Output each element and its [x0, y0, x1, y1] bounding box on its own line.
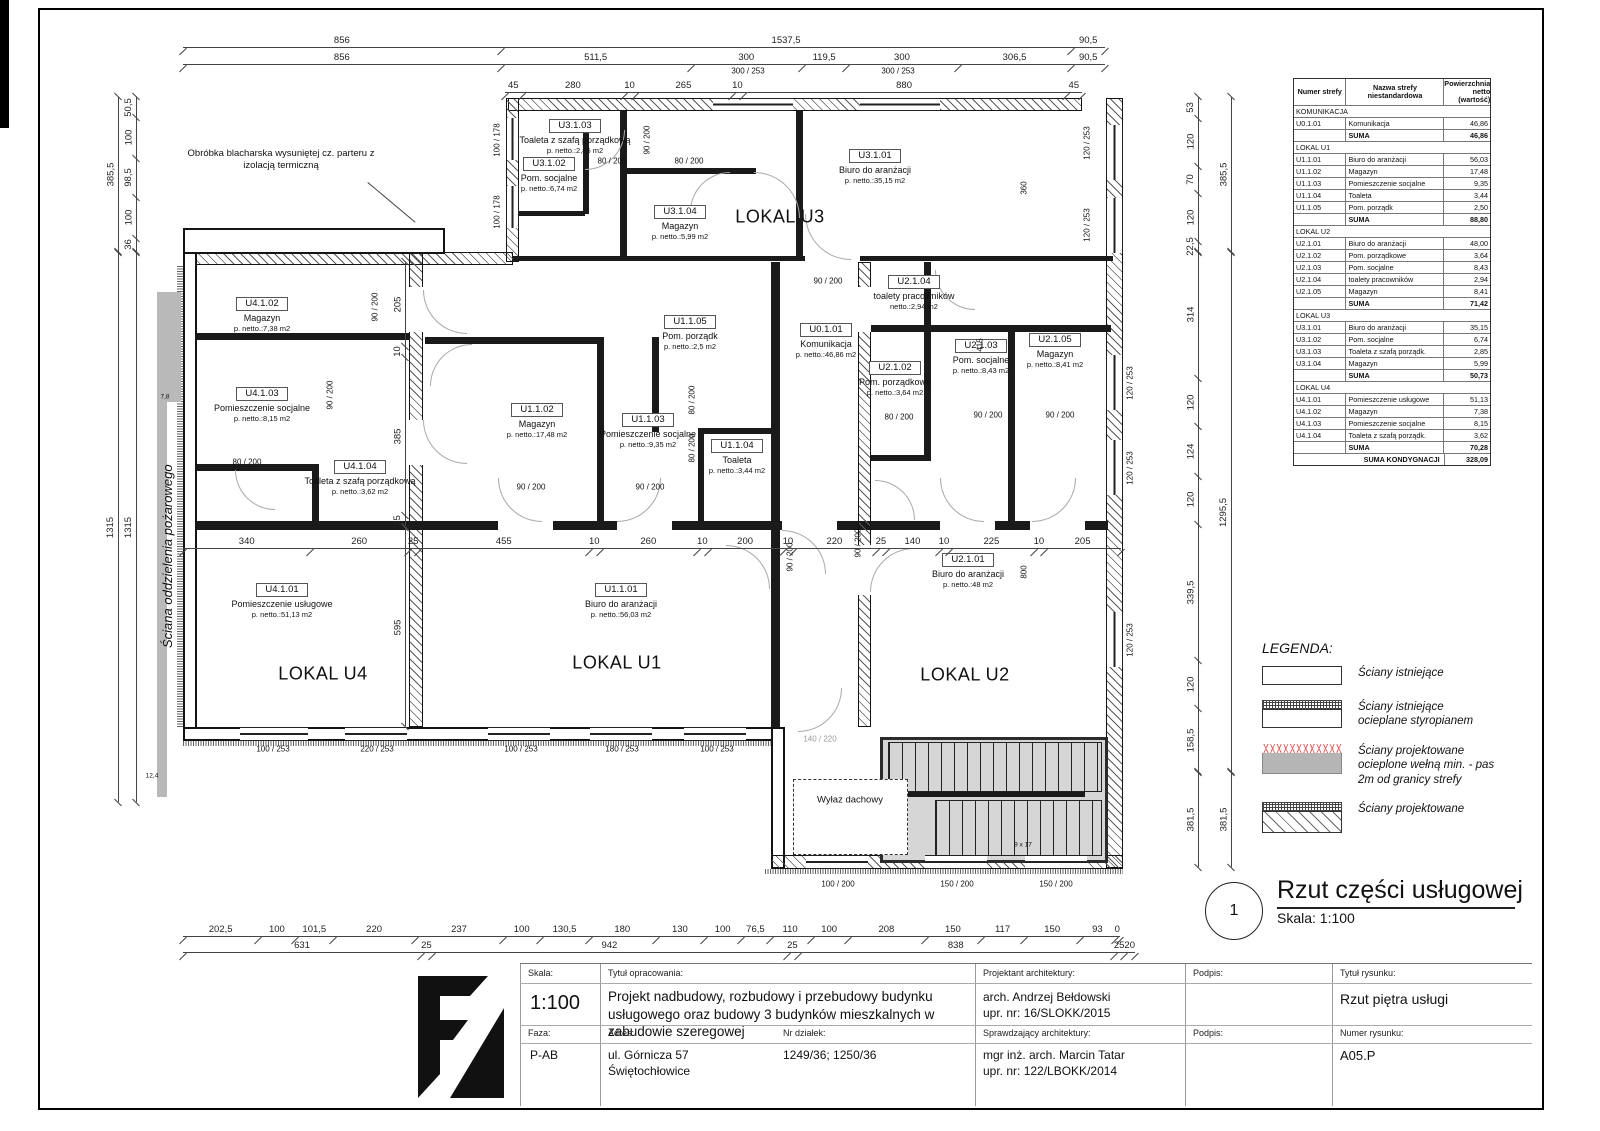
dim-segment: 120 — [1183, 476, 1198, 524]
table-cell: 50,73 — [1444, 370, 1490, 381]
table-row: U2.1.03Pom. socjalne8,43 — [1294, 261, 1490, 273]
dim-segment: 100 — [121, 117, 136, 157]
door-arc — [798, 688, 842, 732]
dim-segment: 140 — [886, 534, 938, 548]
lokal-title: LOKAL U3 — [735, 207, 824, 228]
dim-segment: 856 — [183, 50, 501, 64]
room-label-U3.1.01: U3.1.01Biuro do aranżacjip. netto.:35,15… — [795, 144, 955, 186]
opening-label: 360 — [1020, 181, 1029, 194]
total-value: 328,09 — [1445, 454, 1490, 465]
window — [925, 855, 987, 869]
opening-label: 180 / 253 — [605, 745, 638, 754]
value-tytul-rysunku: Rzut piętra usługi — [1340, 990, 1448, 1008]
drawing-sheet: { "drawing": {"sheet_no":"1","title":"Rz… — [0, 0, 1600, 1131]
dimension-chain: 314120124120339,5120158,5 — [1183, 252, 1199, 772]
value-faza: P-AB — [530, 1048, 558, 1064]
table-row: U3.1.01Biuro do aranżacji35,15 — [1294, 321, 1490, 333]
table-cell: U3.1.03 — [1294, 346, 1346, 357]
table-sum-row: SUMA50,73 — [1294, 369, 1490, 381]
table-cell — [1294, 370, 1346, 381]
value-nr-dzialek: 1249/36; 1250/36 — [783, 1048, 876, 1064]
window — [684, 727, 746, 741]
table-sum-row: SUMA70,28 — [1294, 441, 1490, 453]
dimension-chain: 385,5 — [103, 97, 119, 252]
door-arc — [875, 480, 915, 520]
table-cell: 2,85 — [1444, 346, 1490, 357]
table-cell: U1.1.05 — [1294, 202, 1346, 213]
dim-segment: 265 — [635, 78, 732, 92]
dim-segment: 237 — [415, 922, 503, 936]
table-cell: U2.1.01 — [1294, 238, 1346, 249]
wall-hatch — [508, 98, 1082, 111]
title-block: Skala: Tytuł opracowania: Projektant arc… — [520, 963, 1532, 1106]
dim-segment: 838 — [798, 938, 1114, 952]
section-label: LOKAL U1 — [1294, 142, 1332, 153]
dim-segment: 10 — [939, 534, 950, 548]
table-cell — [1294, 442, 1346, 453]
table-cell: 8,41 — [1444, 286, 1490, 297]
opening-label: 90 / 200 — [636, 483, 665, 492]
opening-label: 300 / 253 — [731, 67, 764, 76]
door-arc — [235, 470, 275, 510]
dim-segment: 90,5 — [1071, 50, 1105, 64]
door-arc — [423, 290, 467, 334]
label-nr-dzialek: Nr działek: — [783, 1028, 826, 1038]
room-label-U3.1.03: U3.1.03Toaleta z szafą porządkowąp. nett… — [495, 114, 655, 156]
opening-label: 90 / 200 — [1046, 411, 1075, 420]
opening-label: 90 / 200 — [814, 277, 843, 286]
dimension-chain: 45280102651088045 — [505, 78, 1082, 93]
dim-segment: 45 — [505, 78, 522, 92]
table-row: U0.1.01Komunikacja46,86 — [1294, 117, 1490, 129]
room-area: p. netto.:3,62 m2 — [280, 487, 440, 497]
dim-segment: 150 — [925, 922, 981, 936]
dimension-chain: 8561537,590,5 — [183, 33, 1105, 48]
table-cell: 71,42 — [1444, 298, 1490, 309]
dim-segment: 385 — [390, 357, 405, 515]
fire-separation-wall-note: Ściana oddzielenia pożarowego — [160, 464, 175, 648]
opening-label: 100 / 200 — [821, 880, 854, 889]
room-id-box: U3.1.03 — [549, 119, 600, 133]
dim-segment: 117 — [981, 922, 1025, 936]
table-cell: U4.1.01 — [1294, 394, 1346, 405]
table-row: U1.1.04Toaleta3,44 — [1294, 189, 1490, 201]
room-name: Toaleta — [657, 455, 817, 467]
table-cell: U3.1.02 — [1294, 334, 1346, 345]
wall-gap — [782, 521, 837, 530]
dim-segment: 10 — [390, 346, 405, 357]
room-area: p. netto.:8,15 m2 — [182, 414, 342, 424]
table-row: U4.1.02Magazyn7,38 — [1294, 405, 1490, 417]
room-id-box: U1.1.02 — [511, 403, 562, 417]
opening-label: 140 / 220 — [803, 735, 836, 744]
table-row: U1.1.05Pom. porządk2,50 — [1294, 201, 1490, 213]
dim-segment: 455 — [418, 534, 589, 548]
room-name: Magazyn — [975, 349, 1135, 361]
dim-segment: 101,5 — [295, 922, 333, 936]
dim-segment: 120 — [1183, 378, 1198, 426]
dim-segment: 340 — [183, 534, 310, 548]
dim-segment: 10 — [783, 534, 794, 548]
room-name: Pom. porządkowe — [815, 377, 975, 389]
dim-segment: 10 — [697, 534, 708, 548]
table-cell: 3,64 — [1444, 250, 1490, 261]
table-cell: 8,43 — [1444, 262, 1490, 273]
dim-segment: 10 — [1034, 534, 1045, 548]
room-label-U4.1.03: U4.1.03Pomieszczenie socjalnep. netto.:8… — [182, 382, 342, 424]
opening-label: 7,8 — [160, 394, 169, 401]
opening-label: 100 / 178 — [493, 195, 502, 228]
dim-segment: 25 — [421, 938, 432, 952]
dim-segment: 25 — [876, 534, 887, 548]
table-cell: 3,44 — [1444, 190, 1490, 201]
door-arc — [1032, 478, 1076, 522]
legend-label: Ściany istniejące — [1358, 666, 1444, 680]
table-cell: U2.1.03 — [1294, 262, 1346, 273]
table-row: U2.1.02Pom. porządkowe3,64 — [1294, 249, 1490, 261]
room-area: p. netto.:3,64 m2 — [815, 388, 975, 398]
opening-label: 80 / 200 — [598, 157, 627, 166]
wall-solid — [425, 337, 603, 344]
table-row: U2.1.04toalety pracowników2,94 — [1294, 273, 1490, 285]
table-row: U3.1.02Pom. socjalne6,74 — [1294, 333, 1490, 345]
legend: LEGENDA: Ściany istniejąceŚciany istniej… — [1262, 640, 1524, 848]
room-name: Toaleta z szafą porządkową — [495, 135, 655, 147]
dim-segment: 76,5 — [741, 922, 769, 936]
section-label: LOKAL U3 — [1294, 310, 1332, 321]
opening-label: 12,4 — [146, 773, 159, 780]
room-id-box: U0.1.01 — [800, 323, 851, 337]
table-cell: 6,74 — [1444, 334, 1490, 345]
table-cell: Biuro do aranżacji — [1346, 154, 1444, 165]
opening-label: 100 / 253 — [256, 745, 289, 754]
dim-segment: 130 — [656, 922, 704, 936]
dim-segment: 1295,5 — [1216, 252, 1231, 772]
value-skala: 1:100 — [530, 990, 580, 1016]
table-section-row: LOKAL U2 — [1294, 225, 1490, 237]
opening-label: 80 / 200 — [688, 434, 697, 463]
opening-label: 90 / 200 — [974, 411, 1003, 420]
dim-segment: 205 — [390, 262, 405, 346]
table-cell: 17,48 — [1444, 166, 1490, 177]
label-faza: Faza: — [528, 1028, 551, 1038]
table-section-row: LOKAL U3 — [1294, 309, 1490, 321]
room-name: Pom. socjalne — [469, 173, 629, 185]
opening-label: 90 / 200 — [326, 381, 335, 410]
table-cell: SUMA — [1346, 370, 1444, 381]
room-area: p. netto.:6,74 m2 — [469, 184, 629, 194]
table-cell: Toaleta — [1346, 190, 1444, 201]
drawing-number-bubble: 1 — [1205, 882, 1263, 940]
opening-label: 100 / 178 — [493, 123, 502, 156]
dim-segment: 20 — [1124, 938, 1135, 952]
dimension-chain: 381,5 — [1216, 772, 1232, 867]
opening-label: 120 / 253 — [1126, 623, 1135, 656]
table-cell: Biuro do aranżacji — [1346, 238, 1444, 249]
table-cell: U4.1.04 — [1294, 430, 1346, 441]
dim-segment: 381,5 — [1183, 772, 1198, 867]
lokal-title: LOKAL U2 — [920, 665, 1009, 686]
table-row: U1.1.02Magazyn17,48 — [1294, 165, 1490, 177]
dim-segment: 225 — [949, 534, 1033, 548]
dimension-chain: 385,5 — [1216, 97, 1232, 252]
opening-label: 415 — [976, 338, 985, 351]
wall-gap — [617, 521, 672, 530]
room-name: Komunikacja — [746, 339, 906, 351]
room-id-box: U3.1.04 — [654, 205, 705, 219]
room-area: p. netto.:5,99 m2 — [600, 232, 760, 242]
room-label-U4.1.02: U4.1.02Magazynp. netto.:7,38 m2 — [182, 292, 342, 334]
window — [1106, 198, 1123, 253]
table-cell: 35,15 — [1444, 322, 1490, 333]
table-cell: Pomieszczenie socjalne — [1346, 418, 1444, 429]
door-arc — [726, 545, 770, 589]
table-cell: SUMA — [1346, 214, 1444, 225]
label-podpis-1: Podpis: — [1193, 968, 1223, 978]
table-cell: 9,35 — [1444, 178, 1490, 189]
dim-segment: 70 — [1183, 166, 1198, 194]
drawing-title: Rzut części usługowej — [1277, 876, 1515, 909]
table-total-row: SUMA KONDYGNACJI328,09 — [1294, 453, 1490, 465]
table-header-row: Numer strefyNazwa strefy niestandardowaP… — [1294, 79, 1490, 105]
table-cell: Magazyn — [1346, 166, 1444, 177]
table-cell: Magazyn — [1346, 406, 1444, 417]
dim-segment: 90,5 — [1071, 33, 1105, 47]
value-adres-2: Świętochłowice — [608, 1064, 690, 1080]
table-cell: 46,86 — [1444, 118, 1490, 129]
dim-segment: 339,5 — [1183, 524, 1198, 660]
table-cell: U2.1.04 — [1294, 274, 1346, 285]
table-cell — [1294, 298, 1346, 309]
opening-label: 150 / 200 — [940, 880, 973, 889]
architect-logo — [408, 974, 508, 1100]
wall-ext — [183, 228, 445, 254]
table-cell: 46,86 — [1444, 130, 1490, 141]
room-name: toalety pracowników — [834, 291, 994, 303]
room-area: netto.:2,94 m2 — [834, 302, 994, 312]
window — [1106, 125, 1123, 180]
room-name: Magazyn — [182, 313, 342, 325]
value-adres-1: ul. Górnicza 57 — [608, 1048, 689, 1064]
dim-segment: 220 — [333, 922, 415, 936]
room-area: p. netto.:3,44 m2 — [657, 466, 817, 476]
dim-segment: 10 — [732, 78, 743, 92]
room-id-box: U4.1.04 — [334, 460, 385, 474]
section-label: LOKAL U4 — [1294, 382, 1332, 393]
legend-item: Ściany istniejące ocieplane styropianem — [1262, 700, 1524, 729]
door-arc — [940, 478, 984, 522]
label-projektant: Projektant architektury: — [983, 968, 1075, 978]
dim-segment: 158,5 — [1183, 708, 1198, 772]
table-cell — [1294, 130, 1346, 141]
table-cell: Pom. socjalne — [1346, 262, 1444, 273]
room-label-U2.1.04: U2.1.04toalety pracownikównetto.:2,94 m2 — [834, 270, 994, 312]
dimension-chain: 1315 — [121, 252, 137, 802]
wall-line — [367, 182, 415, 223]
table-row: U1.1.03Pomieszczenie socjalne9,35 — [1294, 177, 1490, 189]
dimension-chain: 595 — [390, 528, 406, 726]
dimension-chain: 50,510098,510036 — [121, 97, 137, 252]
opening-label: 80 / 200 — [233, 458, 262, 467]
room-id-box: U3.1.02 — [523, 157, 574, 171]
table-row: U1.1.01Biuro do aranżacji56,03 — [1294, 153, 1490, 165]
room-name: Toaleta z szafą porządkową — [280, 476, 440, 488]
legend-title: LEGENDA: — [1262, 640, 1524, 656]
table-cell: SUMA — [1346, 442, 1444, 453]
table-cell: 56,03 — [1444, 154, 1490, 165]
label-tytul-rysunku: Tytuł rysunku: — [1340, 968, 1396, 978]
wall-solid — [624, 168, 756, 174]
room-label-U4.1.04: U4.1.04Toaleta z szafą porządkowąp. nett… — [280, 455, 440, 497]
dimension-chain: 3402602545510260102001022025140102251020… — [183, 534, 1121, 549]
opening-label: 220 / 253 — [360, 745, 393, 754]
table-cell: U1.1.01 — [1294, 154, 1346, 165]
opening-label: 90 / 200 — [371, 293, 380, 322]
opening-label: 80 / 200 — [675, 157, 704, 166]
dim-segment: 100 — [811, 922, 848, 936]
table-row: U4.1.03Pomieszczenie socjalne8,15 — [1294, 417, 1490, 429]
wall-gap — [1030, 521, 1085, 530]
table-cell: 2,50 — [1444, 202, 1490, 213]
section-label: KOMUNIKACJA — [1294, 106, 1350, 117]
room-id-box: U2.1.01 — [942, 553, 993, 567]
opening-label: 120 / 253 — [1126, 366, 1135, 399]
table-sum-row: SUMA46,86 — [1294, 129, 1490, 141]
table-cell: 3,62 — [1444, 430, 1490, 441]
window — [860, 98, 940, 111]
legend-swatch-existing_styro — [1262, 700, 1342, 728]
room-label-U1.1.04: U1.1.04Toaletap. netto.:3,44 m2 — [657, 434, 817, 476]
room-area: p. netto.:56,03 m2 — [541, 610, 701, 620]
dim-segment: 100 — [121, 197, 136, 237]
dimension-chain: 381,5 — [1183, 772, 1199, 867]
table-row: U2.1.05Magazyn8,41 — [1294, 285, 1490, 297]
value-numer-rysunku: A05.P — [1340, 1048, 1375, 1065]
dim-segment: 385,5 — [1216, 97, 1231, 252]
table-row: U4.1.01Pomieszczenie usługowe51,13 — [1294, 393, 1490, 405]
wall-solid — [519, 211, 585, 216]
room-area: p. netto.:51,13 m2 — [202, 610, 362, 620]
room-id-box: U4.1.01 — [256, 583, 307, 597]
room-label-U1.1.01: U1.1.01Biuro do aranżacjip. netto.:56,03… — [541, 578, 701, 620]
value-sprawdzajacy-upr: upr. nr: 122/LBOKK/2014 — [983, 1064, 1117, 1080]
dim-segment: 942 — [432, 938, 787, 952]
opening-label: 90 / 200 — [517, 483, 546, 492]
table-cell: Pom. porządkowe — [1346, 250, 1444, 261]
opening-label: 300 / 253 — [881, 67, 914, 76]
wall-gap — [409, 287, 423, 332]
table-cell: 5,99 — [1444, 358, 1490, 369]
drawing-scale: Skala: 1:100 — [1277, 910, 1525, 926]
table-cell: U3.1.01 — [1294, 322, 1346, 333]
dim-segment: 880 — [743, 78, 1066, 92]
dim-segment: 202,5 — [183, 922, 258, 936]
window — [590, 727, 652, 741]
legend-item: Ściany projektowane — [1262, 802, 1524, 833]
legend-item: Ściany projektowane ocieplone wełną min.… — [1262, 744, 1524, 787]
window — [240, 727, 308, 741]
table-cell: U2.1.05 — [1294, 286, 1346, 297]
table-cell: 48,00 — [1444, 238, 1490, 249]
table-cell: Komunikacja — [1346, 118, 1444, 129]
dimension-chain: 2051038525 — [390, 262, 406, 526]
room-name: Biuro do aranżacji — [541, 599, 701, 611]
room-area: p. netto.:48 m2 — [888, 580, 1048, 590]
room-id-box: U2.1.05 — [1029, 333, 1080, 347]
table-cell: SUMA — [1346, 298, 1444, 309]
dim-segment: 25 — [1114, 938, 1125, 952]
logo-glyph — [408, 974, 508, 1100]
dimension-chain: 1295,5 — [1216, 252, 1232, 772]
dim-segment: 300 — [846, 50, 957, 64]
table-cell: Pomieszczenie usługowe — [1346, 394, 1444, 405]
dim-segment: 10 — [589, 534, 600, 548]
wall-treads — [888, 742, 1102, 792]
dim-segment: 120 — [1183, 118, 1198, 166]
dim-segment: 1537,5 — [501, 33, 1072, 47]
table-cell: 2,94 — [1444, 274, 1490, 285]
room-name: Pomieszczenie usługowe — [202, 599, 362, 611]
room-area: p. netto.:35,15 m2 — [795, 176, 955, 186]
room-name: Pomieszczenie socjalne — [182, 403, 342, 415]
table-cell: Toaleta z szafą porządk. — [1346, 430, 1444, 441]
opening-label: 100 / 253 — [504, 745, 537, 754]
wall-gap — [805, 256, 860, 261]
table-cell: 88,80 — [1444, 214, 1490, 225]
table-cell: Magazyn — [1346, 358, 1444, 369]
table-cell: U1.1.03 — [1294, 178, 1346, 189]
dimension-chain: 202,5100101,5220237100130,518013010076,5… — [183, 922, 1120, 937]
dim-segment: 100 — [704, 922, 741, 936]
table-header: Nazwa strefy niestandardowa — [1346, 79, 1444, 105]
dim-segment: 119,5 — [802, 50, 846, 64]
table-cell: Pom. socjalne — [1346, 334, 1444, 345]
total-label: SUMA KONDYGNACJI — [1294, 454, 1445, 465]
wall-ins-h — [765, 869, 1123, 874]
window — [713, 98, 793, 111]
dim-segment: 381,5 — [1216, 772, 1231, 867]
legend-label: Ściany projektowane ocieplone wełną min.… — [1358, 744, 1494, 787]
table-section-row: KOMUNIKACJA — [1294, 105, 1490, 117]
room-id-box: U1.1.04 — [711, 439, 762, 453]
table-cell: toalety pracowników — [1346, 274, 1444, 285]
room-id-box: U4.1.02 — [236, 297, 287, 311]
wall-gap — [940, 521, 995, 530]
dim-segment: 220 — [793, 534, 875, 548]
section-label: LOKAL U2 — [1294, 226, 1332, 237]
table-cell: U1.1.04 — [1294, 190, 1346, 201]
dim-segment: 25 — [408, 534, 419, 548]
window — [488, 727, 550, 741]
dim-segment: 98,5 — [121, 158, 136, 198]
dim-segment: 100 — [503, 922, 540, 936]
dim-segment: 205 — [1044, 534, 1121, 548]
dim-segment: 208 — [848, 922, 925, 936]
table-cell: 7,38 — [1444, 406, 1490, 417]
dim-segment: 120 — [1183, 193, 1198, 241]
drawing-title-block: 1 Rzut części usługowej Skala: 1:100 — [1205, 876, 1525, 926]
opening-label: 9 x 17 — [1014, 842, 1032, 849]
dim-segment: 130,5 — [540, 922, 589, 936]
table-sum-row: SUMA71,42 — [1294, 297, 1490, 309]
room-id-box: U1.1.03 — [622, 413, 673, 427]
table-cell: Biuro do aranżacji — [1346, 322, 1444, 333]
legend-swatch-proj_wool — [1262, 744, 1342, 774]
legend-swatch-proj — [1262, 802, 1342, 833]
wall-ext — [771, 727, 785, 869]
opening-label: 120 / 253 — [1126, 451, 1135, 484]
dim-segment: 280 — [522, 78, 625, 92]
